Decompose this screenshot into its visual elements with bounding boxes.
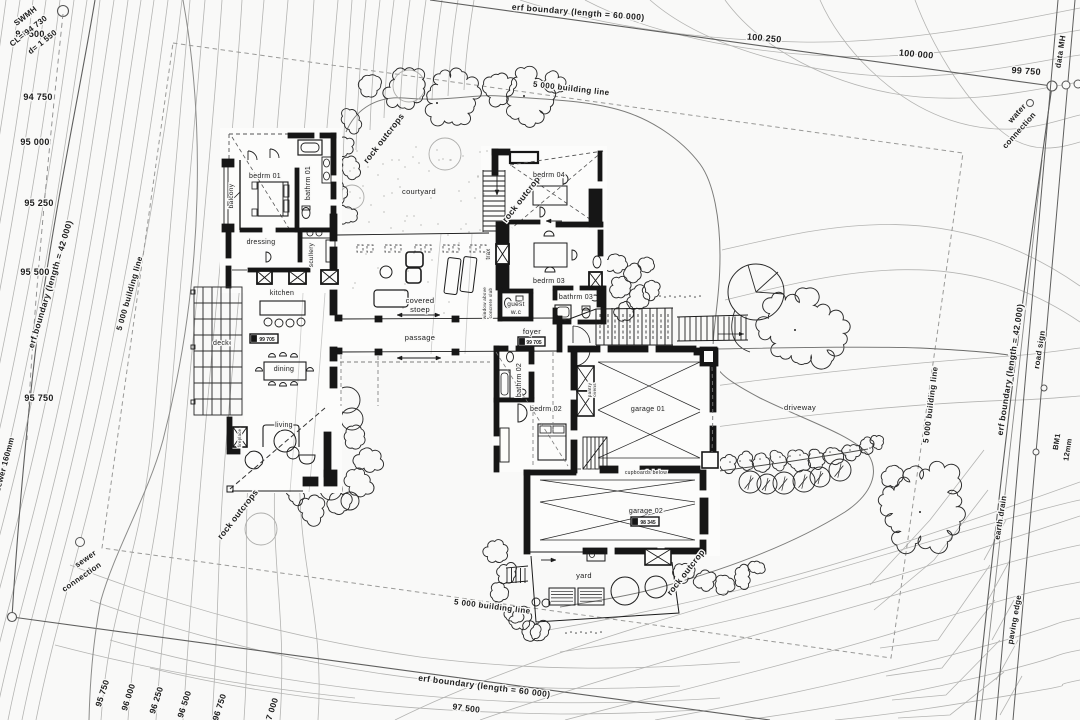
svg-text:bathrm 03: bathrm 03 (559, 294, 593, 301)
svg-text:99 705: 99 705 (526, 340, 542, 346)
svg-text:yard: yard (576, 571, 592, 580)
svg-text:99 705: 99 705 (259, 337, 275, 343)
svg-text:bedrm 03: bedrm 03 (533, 278, 565, 285)
svg-text:passage: passage (405, 333, 435, 342)
svg-text:guest: guest (507, 301, 524, 308)
svg-text:concrete slab: concrete slab (488, 287, 493, 318)
svg-text:dressing: dressing (247, 239, 276, 246)
svg-text:dining: dining (274, 366, 294, 373)
svg-text:95 500: 95 500 (20, 267, 49, 277)
svg-text:cupboards below: cupboards below (625, 470, 667, 476)
svg-text:window above: window above (482, 287, 487, 319)
svg-text:scullery: scullery (308, 242, 315, 267)
svg-text:deck: deck (213, 340, 229, 347)
svg-text:bedrm 04: bedrm 04 (533, 172, 565, 179)
svg-text:bedrm 01: bedrm 01 (249, 173, 281, 180)
svg-text:foyer: foyer (523, 327, 541, 336)
svg-text:bathrm 01: bathrm 01 (305, 166, 312, 200)
svg-text:fireplace: fireplace (237, 428, 242, 447)
svg-text:bedrm 02: bedrm 02 (530, 406, 562, 413)
svg-text:kitchen: kitchen (270, 290, 294, 297)
svg-text:stoep: stoep (410, 305, 430, 314)
svg-text:bathrm 02: bathrm 02 (516, 363, 523, 397)
svg-text:balcony: balcony (228, 183, 235, 208)
svg-text:trax: trax (486, 248, 492, 259)
svg-text:courtyard: courtyard (402, 187, 436, 196)
svg-text:garage 01: garage 01 (631, 406, 665, 413)
svg-text:98 345: 98 345 (640, 520, 656, 526)
svg-text:driveway: driveway (784, 403, 816, 412)
svg-text:covered: covered (406, 296, 435, 305)
svg-text:94 750: 94 750 (23, 92, 52, 102)
svg-text:95 750: 95 750 (24, 393, 53, 403)
svg-text:ovens: ovens (592, 383, 597, 397)
svg-text:living: living (275, 422, 293, 429)
svg-text:95 000: 95 000 (20, 137, 49, 147)
svg-text:w.c: w.c (510, 309, 522, 316)
svg-text:95 250: 95 250 (24, 198, 53, 208)
svg-text:garage 02: garage 02 (629, 508, 663, 515)
svg-text:99 750: 99 750 (1011, 65, 1041, 77)
